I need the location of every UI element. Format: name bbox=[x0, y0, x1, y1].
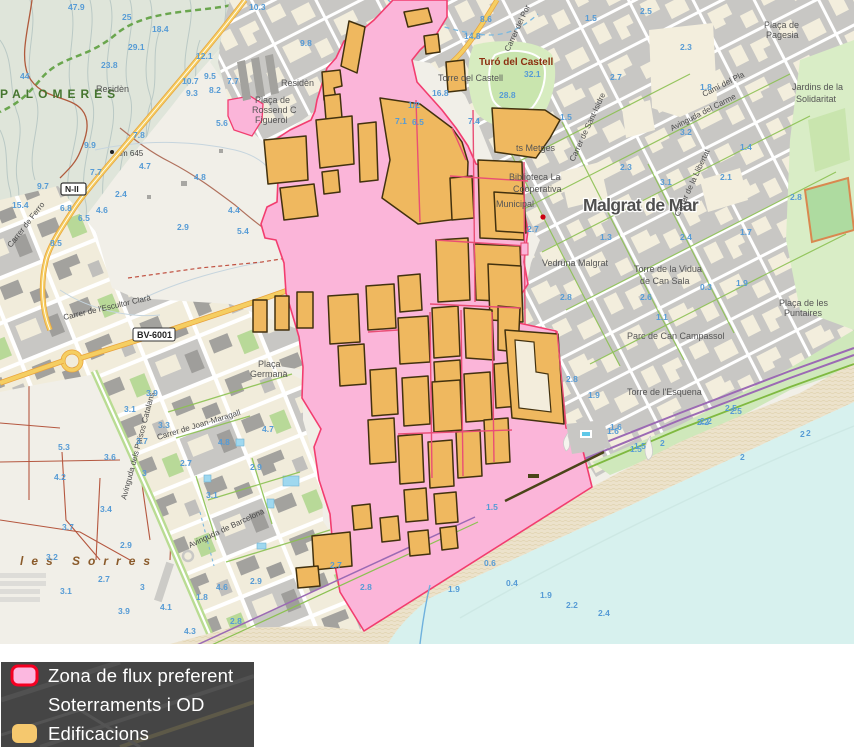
svg-text:2.7: 2.7 bbox=[610, 72, 622, 82]
svg-text:Torre de l'Esquena: Torre de l'Esquena bbox=[627, 387, 702, 397]
svg-text:Torre de la Vidua: Torre de la Vidua bbox=[634, 264, 702, 274]
svg-text:Edificacions: Edificacions bbox=[48, 723, 149, 744]
svg-text:1.9: 1.9 bbox=[540, 590, 552, 600]
svg-text:1.5: 1.5 bbox=[560, 112, 572, 122]
svg-text:7.4: 7.4 bbox=[468, 116, 480, 126]
svg-text:4.8: 4.8 bbox=[218, 437, 230, 447]
svg-text:Figuerol: Figuerol bbox=[255, 115, 288, 125]
svg-text:2.5: 2.5 bbox=[640, 6, 652, 16]
svg-text:6.5: 6.5 bbox=[78, 213, 90, 223]
svg-text:10.3: 10.3 bbox=[249, 2, 266, 12]
svg-text:2: 2 bbox=[800, 429, 805, 439]
svg-text:3.2: 3.2 bbox=[46, 552, 58, 562]
svg-text:7.7: 7.7 bbox=[227, 76, 239, 86]
svg-text:7.8: 7.8 bbox=[133, 130, 145, 140]
svg-text:les Sorres: les Sorres bbox=[20, 554, 158, 568]
svg-text:32.1: 32.1 bbox=[524, 69, 541, 79]
svg-text:Jardins de la: Jardins de la bbox=[792, 82, 843, 92]
svg-text:1/2: 1/2 bbox=[408, 100, 420, 110]
svg-text:Biblioteca La: Biblioteca La bbox=[509, 172, 561, 182]
svg-text:9.9: 9.9 bbox=[84, 140, 96, 150]
svg-text:9.5: 9.5 bbox=[204, 71, 216, 81]
svg-text:16.8: 16.8 bbox=[432, 88, 449, 98]
svg-text:2.8: 2.8 bbox=[566, 374, 578, 384]
svg-text:3.1: 3.1 bbox=[660, 177, 672, 187]
svg-text:1.9: 1.9 bbox=[448, 584, 460, 594]
svg-text:3.2: 3.2 bbox=[680, 127, 692, 137]
svg-text:3.7: 3.7 bbox=[62, 522, 74, 532]
svg-text:1.6: 1.6 bbox=[607, 426, 619, 436]
svg-text:47.9: 47.9 bbox=[68, 2, 85, 12]
svg-text:2.4: 2.4 bbox=[680, 232, 692, 242]
svg-text:0.3: 0.3 bbox=[700, 282, 712, 292]
svg-text:2.7: 2.7 bbox=[527, 224, 539, 234]
svg-text:3.1: 3.1 bbox=[124, 404, 136, 414]
svg-text:7.7: 7.7 bbox=[90, 167, 102, 177]
svg-text:de Can Sala: de Can Sala bbox=[640, 276, 690, 286]
svg-text:3.9: 3.9 bbox=[146, 388, 158, 398]
svg-text:0.6: 0.6 bbox=[484, 558, 496, 568]
svg-text:3: 3 bbox=[142, 468, 147, 478]
svg-text:23.8: 23.8 bbox=[101, 60, 118, 70]
svg-text:3: 3 bbox=[140, 582, 145, 592]
svg-text:8.5: 8.5 bbox=[50, 238, 62, 248]
svg-text:2.3: 2.3 bbox=[620, 162, 632, 172]
svg-text:2.4: 2.4 bbox=[115, 189, 127, 199]
svg-text:28.8: 28.8 bbox=[499, 90, 516, 100]
svg-text:2.2: 2.2 bbox=[697, 417, 709, 427]
svg-text:5.4: 5.4 bbox=[237, 226, 249, 236]
svg-text:3.1: 3.1 bbox=[206, 490, 218, 500]
svg-text:44: 44 bbox=[20, 71, 30, 81]
svg-text:1.8: 1.8 bbox=[196, 592, 208, 602]
svg-text:Plaça de les: Plaça de les bbox=[779, 298, 829, 308]
svg-text:4.7: 4.7 bbox=[139, 161, 151, 171]
svg-text:5.6: 5.6 bbox=[216, 118, 228, 128]
svg-text:2.1: 2.1 bbox=[720, 172, 732, 182]
svg-text:2.8: 2.8 bbox=[790, 192, 802, 202]
svg-text:Puntaires: Puntaires bbox=[784, 308, 823, 318]
svg-text:Plaça de: Plaça de bbox=[255, 95, 290, 105]
svg-text:2.9: 2.9 bbox=[250, 576, 262, 586]
svg-text:14.8: 14.8 bbox=[464, 31, 481, 41]
svg-text:1.4: 1.4 bbox=[740, 142, 752, 152]
svg-text:2.6: 2.6 bbox=[640, 292, 652, 302]
svg-text:4.2: 4.2 bbox=[54, 472, 66, 482]
svg-text:1.9: 1.9 bbox=[736, 278, 748, 288]
svg-text:2: 2 bbox=[660, 438, 665, 448]
svg-text:Rossend C: Rossend C bbox=[252, 105, 297, 115]
svg-text:BV-6001: BV-6001 bbox=[137, 330, 172, 340]
svg-text:2.9: 2.9 bbox=[177, 222, 189, 232]
svg-text:18.4: 18.4 bbox=[152, 24, 169, 34]
svg-text:Torre del Castell: Torre del Castell bbox=[438, 73, 503, 83]
svg-text:6.8: 6.8 bbox=[60, 203, 72, 213]
svg-text:7.1: 7.1 bbox=[395, 116, 407, 126]
svg-text:2: 2 bbox=[806, 428, 811, 438]
svg-text:3.9: 3.9 bbox=[118, 606, 130, 616]
svg-text:Municipal: Municipal bbox=[496, 199, 534, 209]
svg-text:25: 25 bbox=[122, 12, 132, 22]
svg-text:2.7: 2.7 bbox=[330, 560, 342, 570]
svg-text:Parc de Can Campassol: Parc de Can Campassol bbox=[627, 331, 725, 341]
svg-text:2.5: 2.5 bbox=[725, 403, 737, 413]
svg-text:9.8: 9.8 bbox=[300, 38, 312, 48]
svg-text:Solidaritat: Solidaritat bbox=[796, 94, 837, 104]
svg-text:Plaça: Plaça bbox=[258, 359, 281, 369]
svg-text:29.1: 29.1 bbox=[128, 42, 145, 52]
svg-text:3.7: 3.7 bbox=[136, 436, 148, 446]
svg-text:Residèn: Residèn bbox=[281, 78, 314, 88]
svg-text:3.1: 3.1 bbox=[60, 586, 72, 596]
svg-text:2: 2 bbox=[740, 452, 745, 462]
svg-text:2.9: 2.9 bbox=[250, 462, 262, 472]
svg-text:4.8: 4.8 bbox=[194, 172, 206, 182]
svg-text:4.6: 4.6 bbox=[216, 582, 228, 592]
svg-text:3.3: 3.3 bbox=[158, 420, 170, 430]
svg-text:Germana: Germana bbox=[250, 369, 288, 379]
svg-text:4.3: 4.3 bbox=[184, 626, 196, 636]
svg-text:2.8: 2.8 bbox=[360, 582, 372, 592]
svg-text:1.5: 1.5 bbox=[486, 502, 498, 512]
svg-text:3.6: 3.6 bbox=[104, 452, 116, 462]
svg-text:N-II: N-II bbox=[65, 184, 79, 194]
svg-text:2.8: 2.8 bbox=[230, 616, 242, 626]
svg-text:Residèn: Residèn bbox=[96, 84, 129, 94]
svg-text:15.4: 15.4 bbox=[12, 200, 29, 210]
svg-text:ts Metges: ts Metges bbox=[516, 143, 556, 153]
svg-text:2.2: 2.2 bbox=[566, 600, 578, 610]
svg-text:12.1: 12.1 bbox=[196, 51, 213, 61]
svg-text:5.3: 5.3 bbox=[58, 442, 70, 452]
svg-text:Soterraments i OD: Soterraments i OD bbox=[48, 694, 205, 715]
svg-text:8.2: 8.2 bbox=[209, 85, 221, 95]
svg-text:4.6: 4.6 bbox=[96, 205, 108, 215]
svg-text:2.7: 2.7 bbox=[180, 458, 192, 468]
svg-text:3.4: 3.4 bbox=[100, 504, 112, 514]
svg-text:Turó del Castell: Turó del Castell bbox=[479, 57, 553, 68]
svg-text:1.1: 1.1 bbox=[656, 312, 668, 322]
svg-text:Zona de flux preferent: Zona de flux preferent bbox=[48, 665, 233, 686]
svg-text:2.4: 2.4 bbox=[598, 608, 610, 618]
svg-text:1.5: 1.5 bbox=[630, 444, 642, 454]
svg-text:2.3: 2.3 bbox=[680, 42, 692, 52]
svg-text:0.4: 0.4 bbox=[506, 578, 518, 588]
svg-text:2.7: 2.7 bbox=[98, 574, 110, 584]
svg-text:1.3: 1.3 bbox=[600, 232, 612, 242]
svg-text:9.3: 9.3 bbox=[186, 88, 198, 98]
svg-text:6.5: 6.5 bbox=[412, 117, 424, 127]
svg-text:4.7: 4.7 bbox=[262, 424, 274, 434]
svg-text:Vedruna Malgrat: Vedruna Malgrat bbox=[542, 258, 609, 268]
svg-text:8.6: 8.6 bbox=[480, 14, 492, 24]
svg-text:Cooperativa: Cooperativa bbox=[513, 184, 562, 194]
svg-text:Pagesia: Pagesia bbox=[766, 30, 799, 40]
svg-text:2.8: 2.8 bbox=[560, 292, 572, 302]
svg-text:2.9: 2.9 bbox=[120, 540, 132, 550]
svg-text:1.5: 1.5 bbox=[585, 13, 597, 23]
svg-text:4.4: 4.4 bbox=[228, 205, 240, 215]
svg-text:1.8: 1.8 bbox=[700, 82, 712, 92]
svg-text:Plaça de: Plaça de bbox=[764, 20, 799, 30]
svg-text:4.1: 4.1 bbox=[160, 602, 172, 612]
svg-text:9.7: 9.7 bbox=[37, 181, 49, 191]
svg-text:1.9: 1.9 bbox=[588, 390, 600, 400]
svg-text:1.7: 1.7 bbox=[740, 227, 752, 237]
svg-text:10.7: 10.7 bbox=[182, 76, 199, 86]
